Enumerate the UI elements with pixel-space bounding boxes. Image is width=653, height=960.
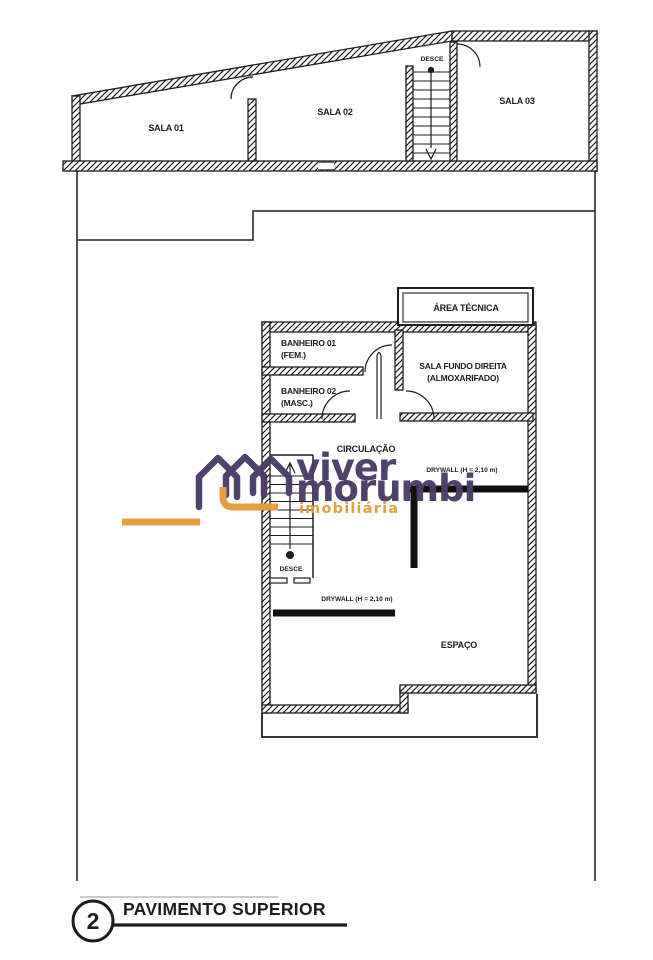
partition-sala01-sala02 [248,99,256,161]
stair-rail-dot-mid [286,551,294,559]
door-arc-sala02 [231,77,253,99]
door-arc-sala03 [457,44,480,67]
floor-plan-page: DESCE SALA 01 SALA 02 SALA 03 ÁREA TÉC [0,0,653,960]
wc-bottom-wall-left [262,414,355,422]
unit-left-wall [262,322,270,713]
watermark-logo: viver morumbi imobiliária [122,446,475,522]
top-right-wall [452,31,597,41]
stair-bottom-stub-left [270,578,287,583]
area-tecnica-box: ÁREA TÉCNICA [398,288,533,325]
strip-right-wall [589,31,597,171]
room-label-banheiro02-line1: BANHEIRO 02 [281,386,336,396]
site-outline [77,171,595,897]
room-label-sala02: SALA 02 [317,107,352,117]
staircase-upper: DESCE [406,42,457,161]
room-label-sala-fundo-line1: SALA FUNDO DIREITA [419,361,507,371]
room-label-banheiro01-line2: (FEM.) [281,350,306,360]
drywall-label-lower: DRYWALL (H = 2,10 m) [321,596,392,603]
title-number: 2 [87,908,100,934]
stair-rail-dot [428,67,434,73]
lower-roof-edge [78,211,595,240]
door-arc-banheiro01 [365,345,392,372]
door-opening-bottom-wall [318,162,334,170]
room-label-espaco: ESPAÇO [441,640,477,650]
houses-icon [199,457,289,507]
desce-label-upper: DESCE [421,56,444,63]
desce-label-middle: DESCE [280,566,303,573]
upper-rooms-strip: DESCE SALA 01 SALA 02 SALA 03 [63,31,597,171]
title-block: 2 PAVIMENTO SUPERIOR [73,899,347,941]
title-label: PAVIMENTO SUPERIOR [123,899,326,919]
strip-left-wall [72,96,80,171]
wc-bottom-wall-right [400,413,533,421]
unit-right-wall [528,325,536,693]
stair-bottom-stub-right [294,578,310,583]
room-label-sala01: SALA 01 [148,123,183,133]
watermark-text-imobiliaria: imobiliária [299,501,399,517]
room-label-banheiro02-line2: (MASC.) [281,398,313,408]
stair-down-arrow [426,149,436,159]
door-leaves-circulacao [377,353,381,420]
floor-plan-drawing: DESCE SALA 01 SALA 02 SALA 03 ÁREA TÉC [0,0,653,960]
wc-vertical-wall [395,330,403,390]
room-label-sala-fundo-line2: (ALMOXARIFADO) [427,373,499,383]
espaco-bottom-wall-high [400,685,536,693]
wc-middle-wall [262,367,363,375]
slanted-roof-wall [72,31,452,104]
room-label-area-tecnica: ÁREA TÉCNICA [433,303,499,313]
room-label-sala03: SALA 03 [499,96,534,106]
espaco-bottom-wall-low [262,705,408,713]
room-label-banheiro01-line1: BANHEIRO 01 [281,338,336,348]
